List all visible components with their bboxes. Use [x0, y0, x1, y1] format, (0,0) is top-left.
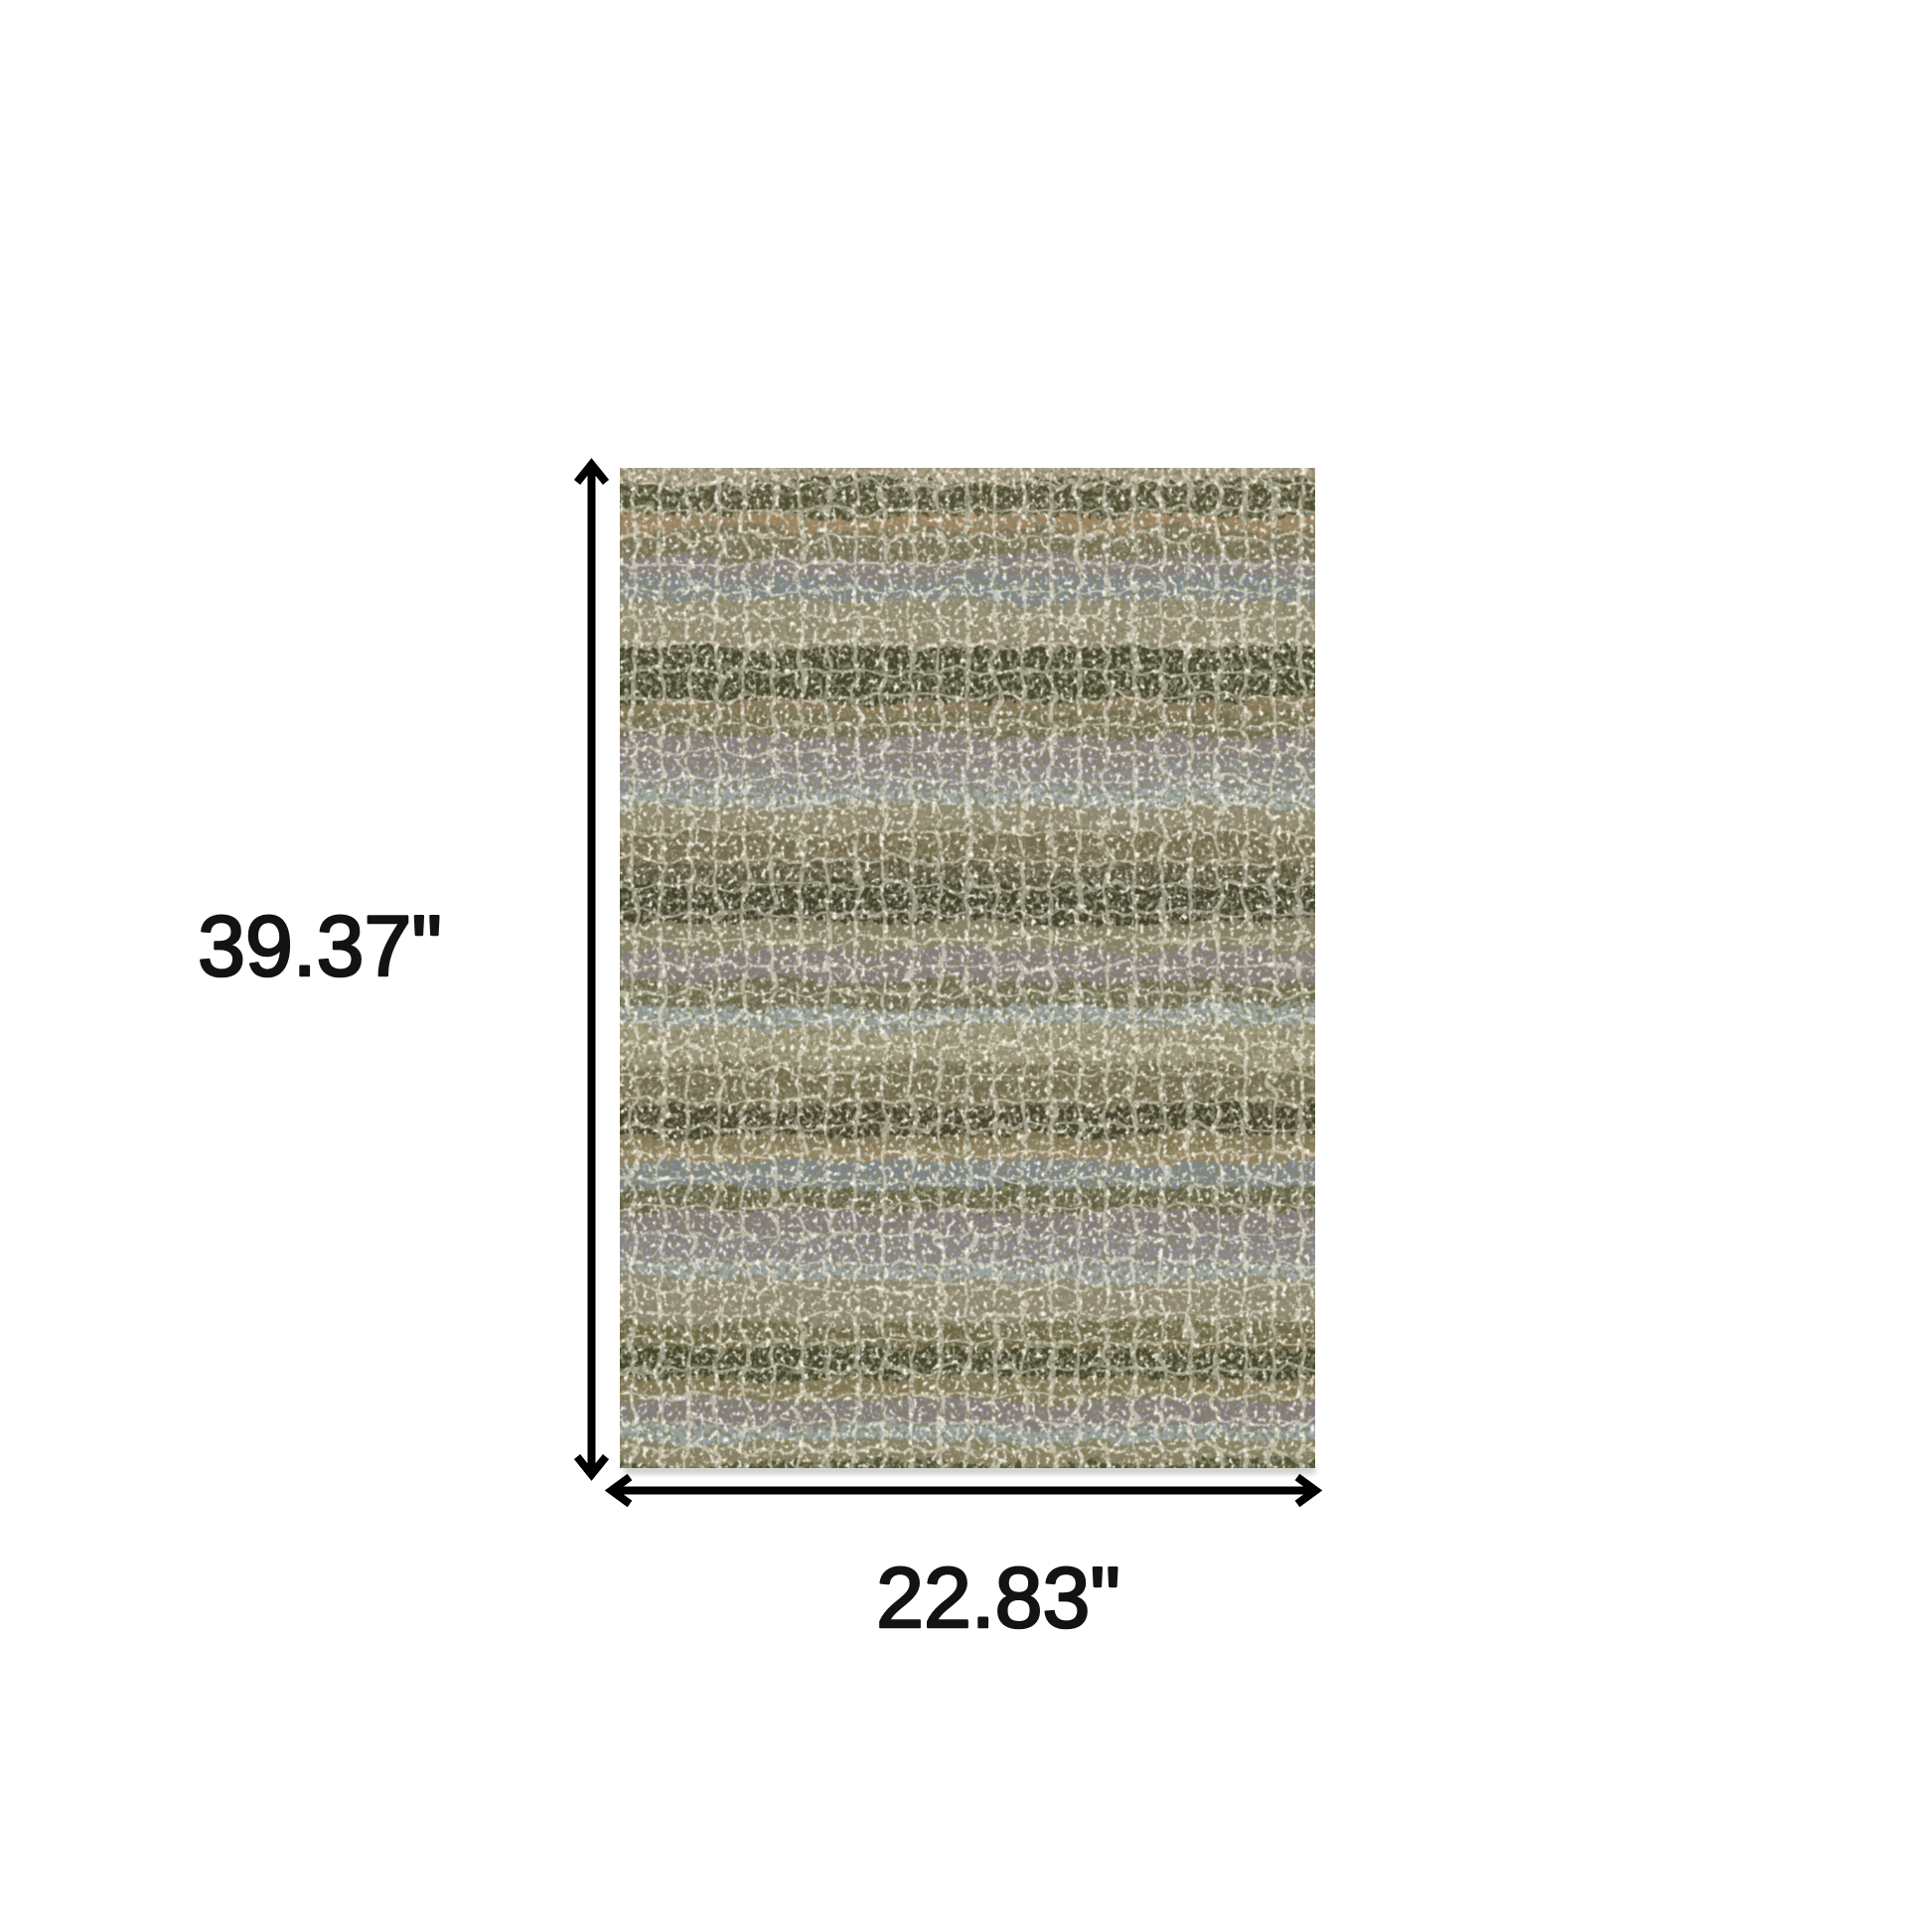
svg-text:22.83": 22.83": [876, 1551, 1120, 1646]
svg-text:39.37": 39.37": [198, 899, 442, 994]
